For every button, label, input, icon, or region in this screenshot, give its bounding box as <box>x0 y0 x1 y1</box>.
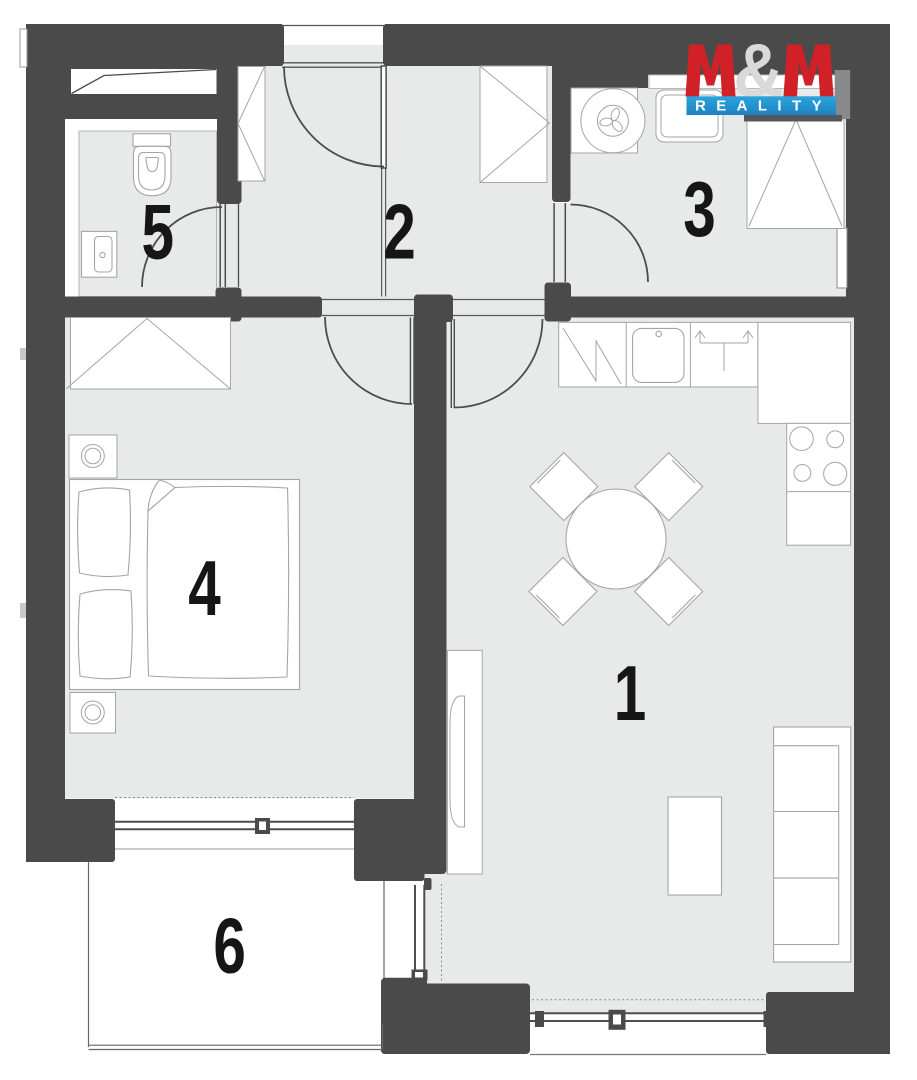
svg-text:REALITY: REALITY <box>695 98 832 115</box>
svg-text:3: 3 <box>683 166 716 253</box>
svg-text:4: 4 <box>188 545 221 632</box>
svg-text:6: 6 <box>213 902 246 989</box>
svg-text:1: 1 <box>614 650 647 737</box>
svg-text:2: 2 <box>383 188 416 275</box>
svg-text:5: 5 <box>142 188 175 275</box>
